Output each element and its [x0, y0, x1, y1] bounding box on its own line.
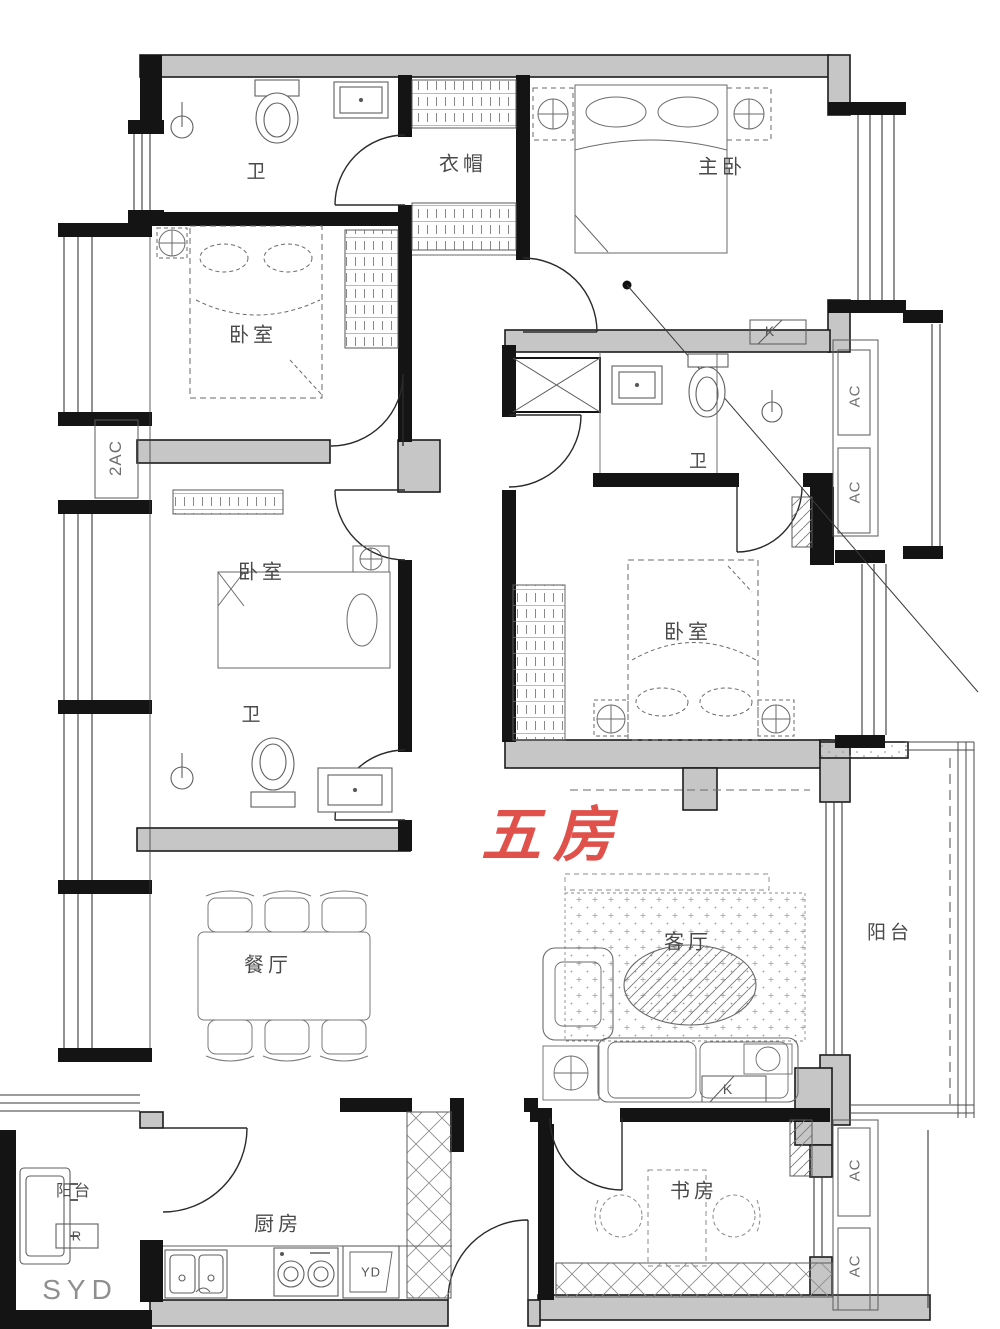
label-bath-left: 卫: [241, 700, 264, 727]
label-plan-type: 五房: [481, 787, 625, 874]
label-cloakroom: 衣帽: [439, 148, 487, 177]
label-bedroom-left-lower: 卧室: [238, 556, 286, 585]
floor-plan: 卫 衣帽 主卧 卧室 卧室 卫 卫 卧室 餐厅 客厅 阳台 阳台 厨房 书房 五…: [0, 0, 1000, 1329]
bath-left-fixtures: [171, 738, 392, 812]
label-living-room: 客厅: [664, 926, 712, 955]
label-ac-right-mid: AC: [847, 481, 864, 504]
label-bedroom-left-upper: 卧室: [229, 319, 277, 348]
label-ac-bottom-upper: AC: [847, 1159, 864, 1182]
label-dining-room: 餐厅: [244, 949, 292, 978]
label-drying-area: SYD: [42, 1274, 118, 1306]
label-k-living: K: [723, 1081, 733, 1097]
label-balcony-left: 阳台: [56, 1177, 92, 1201]
label-laundry-area: YD: [361, 1265, 381, 1280]
living-room-furniture: [543, 874, 805, 1102]
floor-plan-drawing: [0, 0, 1000, 1329]
label-bath-top: 卫: [246, 157, 269, 184]
bedroom-left-upper-furniture: [157, 226, 322, 398]
label-refrigerator: R: [72, 1229, 82, 1244]
label-ac-bottom-lower: AC: [847, 1255, 864, 1278]
study-door-opening: [552, 1106, 620, 1124]
bedroom-right-furniture: [594, 560, 794, 740]
label-kitchen: 厨房: [254, 1208, 302, 1237]
label-study: 书房: [670, 1175, 718, 1204]
label-k-master: K: [765, 323, 775, 339]
label-ac-double: 2AC: [106, 440, 126, 476]
label-bedroom-right: 卧室: [664, 616, 712, 645]
label-bath-right: 卫: [689, 447, 711, 473]
label-master-bedroom: 主卧: [698, 151, 746, 180]
bath-top-fixtures: [171, 80, 388, 143]
label-balcony-right: 阳台: [867, 918, 913, 945]
label-ac-right-top: AC: [847, 385, 864, 408]
